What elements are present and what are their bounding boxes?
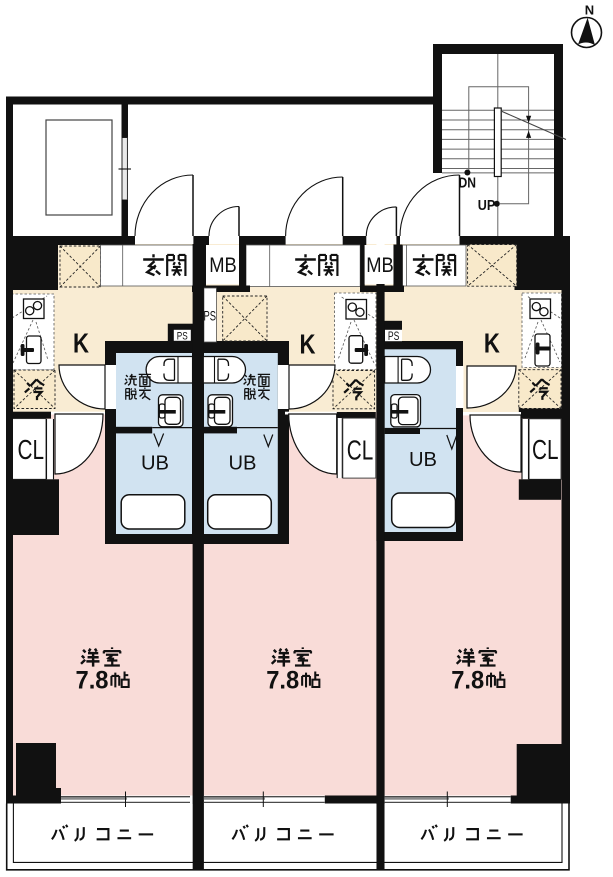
svg-text:UB: UB: [229, 453, 257, 475]
svg-text:CL: CL: [532, 434, 559, 465]
svg-text:UP: UP: [478, 197, 496, 214]
svg-text:N: N: [585, 3, 594, 18]
svg-text:CL: CL: [18, 434, 45, 465]
svg-text:PS: PS: [388, 329, 400, 343]
svg-text:K: K: [73, 327, 89, 358]
svg-text:7.8: 7.8: [76, 667, 109, 695]
svg-text:MB: MB: [366, 254, 394, 277]
svg-text:PS: PS: [177, 330, 188, 342]
svg-text:UB: UB: [141, 453, 169, 475]
svg-text:DN: DN: [459, 175, 477, 192]
svg-text:7.8: 7.8: [266, 667, 299, 695]
svg-text:K: K: [484, 328, 500, 359]
svg-text:K: K: [300, 329, 316, 360]
svg-text:UB: UB: [409, 449, 437, 471]
svg-text:PS: PS: [204, 308, 217, 324]
svg-text:7.8: 7.8: [451, 667, 484, 695]
svg-text:MB: MB: [209, 254, 237, 277]
svg-text:CL: CL: [347, 435, 374, 466]
